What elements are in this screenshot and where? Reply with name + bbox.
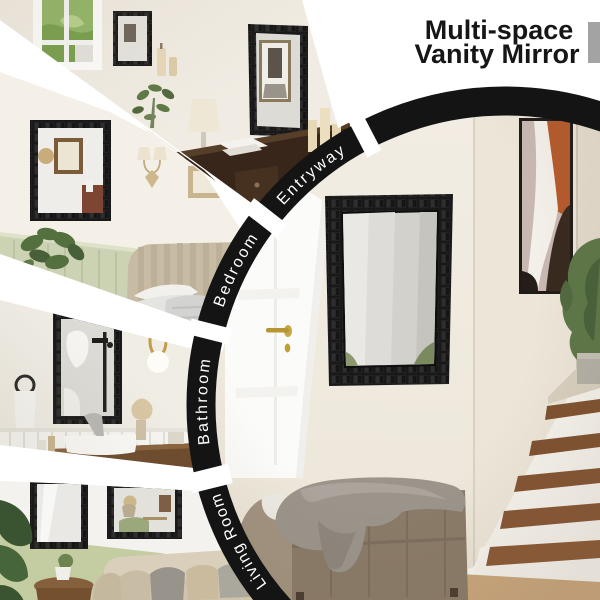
svg-text:Vanity Mirror: Vanity Mirror — [414, 39, 580, 69]
